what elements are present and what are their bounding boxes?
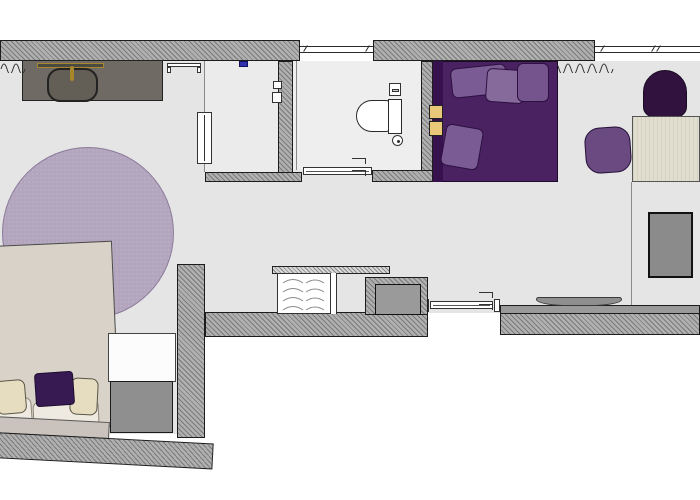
entry-door-jamb — [494, 299, 500, 312]
wall-shelf — [167, 63, 201, 73]
window-pane-line — [595, 46, 700, 47]
toilet — [356, 99, 403, 134]
paper-roll-line — [392, 89, 399, 92]
daybed-pillow — [440, 123, 485, 171]
luggage-bench — [110, 381, 173, 433]
bath-floor-edge — [296, 61, 297, 170]
curtain-icon — [552, 60, 620, 73]
floor-closet — [205, 61, 278, 172]
floor-plan-canvas — [0, 0, 700, 500]
window-2 — [595, 40, 700, 61]
accent-pillow-purple — [34, 371, 75, 408]
tv-panel — [648, 212, 693, 278]
minibar-arcs — [278, 274, 333, 313]
window-1 — [300, 40, 373, 61]
radiator-panel — [197, 112, 212, 164]
daybed-cushion-yellow — [429, 121, 443, 136]
entry-door-mark — [479, 304, 493, 310]
wall-bedroom-right — [177, 264, 205, 438]
hall-divider-line — [631, 182, 632, 305]
entry-door-mark — [479, 292, 493, 298]
wall-bottom-right-core — [501, 314, 699, 334]
daybed-cushion-yellow — [429, 105, 443, 119]
daybed-pillow — [517, 63, 549, 102]
lounge-chair-dark — [643, 70, 687, 117]
light-switch — [273, 81, 282, 89]
floor-drain — [392, 135, 403, 146]
console-shelf — [536, 297, 622, 306]
toilet-paper-holder — [389, 83, 401, 96]
wall-top-left — [0, 40, 300, 61]
toilet-bowl — [356, 100, 390, 132]
window-pane-line — [595, 52, 700, 53]
drain-dot — [397, 140, 400, 143]
wall-bottom-right — [500, 305, 700, 335]
wall-closet-bottom — [205, 172, 302, 182]
desk — [632, 116, 700, 182]
wall-top-middle — [373, 40, 595, 61]
nightstand — [108, 333, 176, 382]
wall-shelf-leg — [167, 67, 171, 73]
window-pane-line — [300, 46, 373, 47]
window-pane-line — [300, 52, 373, 53]
wall-shelf-leg — [197, 67, 201, 73]
wall-closet-bath — [278, 61, 293, 182]
light-switch — [272, 92, 282, 103]
wall-bottom-right-ledge — [501, 306, 699, 314]
bathroom-door-mark — [352, 158, 366, 164]
minibar-cabinet — [277, 273, 334, 314]
bathroom-door-mark — [352, 170, 366, 176]
toilet-tank — [388, 99, 402, 134]
service-shaft-inner — [375, 284, 421, 315]
wall-shelf-bar — [167, 63, 201, 67]
faucet-icon — [70, 66, 74, 81]
bed-pillow-left — [0, 379, 27, 415]
wall-bottom-middle — [205, 312, 428, 337]
minibar-divider — [330, 273, 337, 314]
ceiling-light — [239, 61, 248, 67]
radiator-inner-line — [204, 115, 205, 161]
wall-bath-bottom — [372, 170, 433, 182]
desk-chair — [583, 125, 632, 174]
curtain-icon — [0, 60, 30, 73]
